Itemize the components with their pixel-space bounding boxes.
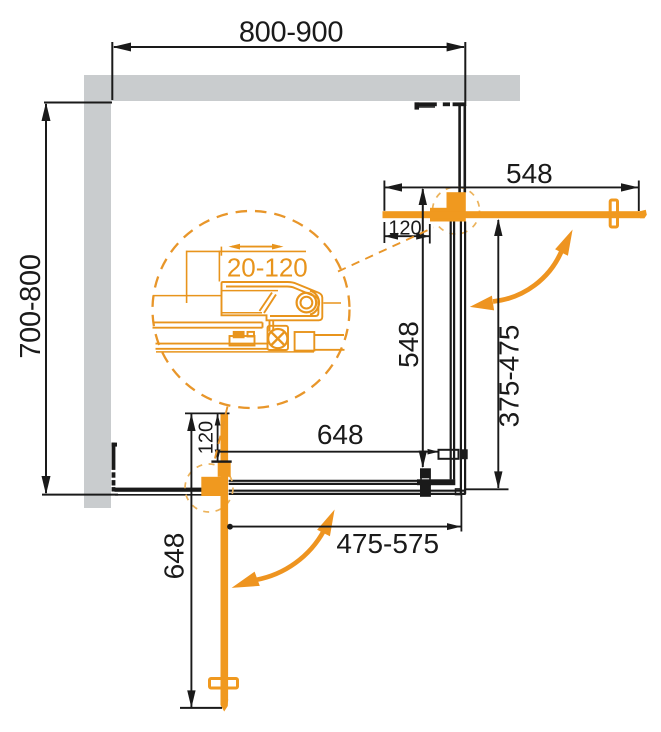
svg-text:648: 648 xyxy=(159,533,190,580)
svg-text:700-800: 700-800 xyxy=(15,254,47,358)
svg-text:800-900: 800-900 xyxy=(239,17,343,49)
svg-text:548: 548 xyxy=(393,321,424,368)
svg-text:375-475: 375-475 xyxy=(494,325,525,428)
svg-text:475-575: 475-575 xyxy=(336,528,439,559)
svg-text:120: 120 xyxy=(196,421,218,454)
svg-text:20-120: 20-120 xyxy=(227,253,308,283)
svg-text:648: 648 xyxy=(317,419,364,450)
svg-text:548: 548 xyxy=(506,158,553,189)
svg-text:120: 120 xyxy=(388,218,421,240)
